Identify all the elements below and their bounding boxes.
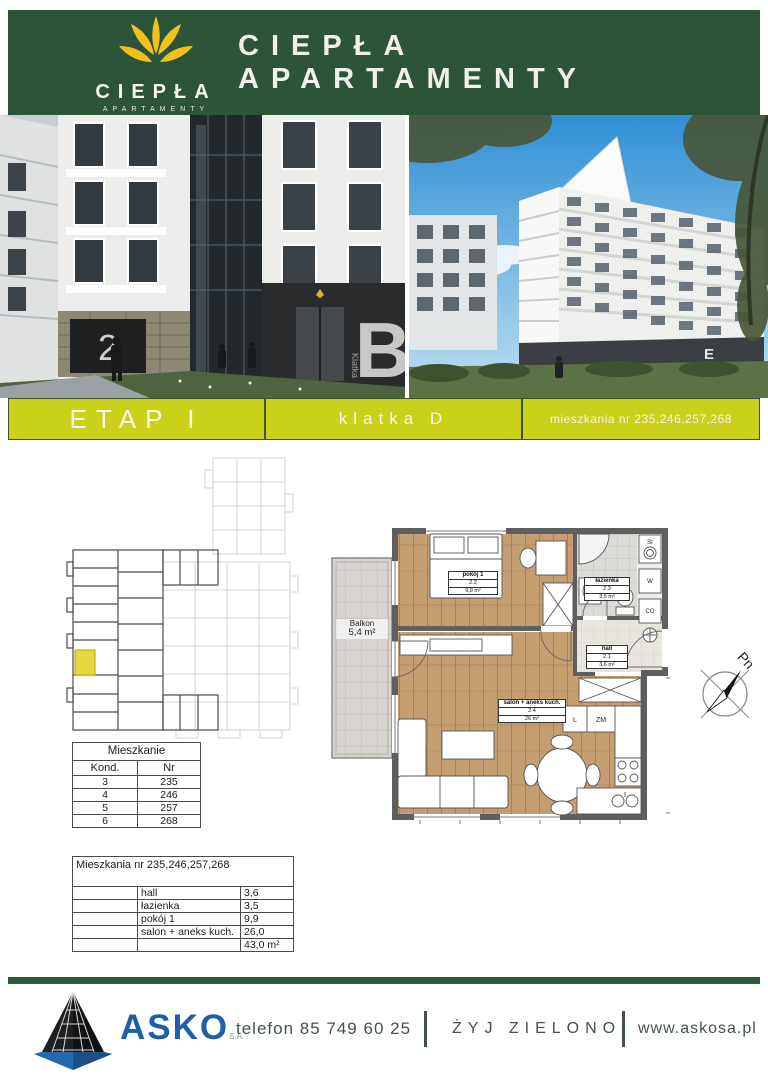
page-title: CIEPŁA APARTAMENTY: [238, 10, 750, 115]
col-nr: Nr: [138, 761, 201, 776]
asko-logo-icon: [28, 990, 118, 1074]
entrance-letter-e: E: [704, 346, 714, 363]
footer-website: www.askosa.pl: [638, 1020, 757, 1038]
stair-label: Klatka: [350, 353, 360, 378]
shaft-label-st: St: [647, 540, 653, 546]
brand-logo: CIEPŁA APARTAMENTY: [66, 16, 246, 115]
table-row: salon + aneks kuch. 26,0: [73, 926, 294, 939]
banner-etap: ETAP I: [9, 399, 264, 439]
banner-klatka: klatka D: [264, 399, 521, 439]
logo-sub-text: APARTAMENTY: [66, 106, 246, 113]
compass-rose: Pn: [693, 640, 765, 728]
footer-separator: [622, 1011, 625, 1047]
table-row: 6 268: [73, 815, 201, 828]
logo-brand-text: CIEPŁA: [66, 81, 246, 104]
header-bar: CIEPŁA APARTAMENTY CIEPŁA APARTAMENTY: [8, 10, 760, 115]
room-label-salon: salon + aneks kuch. 2.4 26 m²: [498, 699, 566, 723]
room-label-lazienka: łazienka 2.3 3,5 m²: [584, 577, 630, 601]
room-label-hall: hall 2.1 3,6 m²: [586, 645, 628, 669]
footer-phone: telefon 85 749 60 25: [236, 1019, 411, 1039]
highlighted-unit: [75, 650, 95, 675]
footer-slogan: ŻYJ ZIELONO: [452, 1020, 621, 1038]
table-row: 3 235: [73, 776, 201, 789]
footer-separator: [424, 1011, 427, 1047]
areas-table: Mieszkania nr 235,246,257,268 hall 3,6 ł…: [72, 856, 294, 952]
entrance-letter-b: B: [355, 306, 405, 394]
kitchen-label-fridge: L: [573, 717, 577, 724]
shaft-label-co: CO: [646, 609, 655, 615]
compass-north-label: Pn: [734, 649, 757, 672]
flyer-page: CIEPŁA APARTAMENTY CIEPŁA APARTAMENTY: [0, 0, 768, 1087]
table-row: pokój 1 9,9: [73, 913, 294, 926]
kitchen-label-dishwasher: ZM: [596, 717, 606, 724]
apartment-floorplan: St W CO: [330, 523, 670, 825]
areas-table-title: Mieszkania nr 235,246,257,268: [73, 857, 294, 887]
total-area: 43,0 m²: [241, 939, 294, 952]
table-row: 4 246: [73, 789, 201, 802]
balcony-label: Balkon 5,4 m²: [336, 619, 388, 639]
table-total-row: 43,0 m²: [73, 939, 294, 952]
footer-divider: [8, 977, 760, 984]
banner-mieszkania: mieszkania nr 235,246,257,268: [521, 399, 759, 439]
table-row: hall 3,6: [73, 887, 294, 900]
apartments-table: Mieszkanie Kond. Nr 3 235 4 246 5 257 6 …: [72, 742, 201, 828]
lotus-flower-icon: [119, 16, 193, 74]
building-render-left: 2 B Klatka: [0, 115, 409, 398]
asko-wordmark: ASKOS.A.: [120, 1008, 244, 1048]
shaft-label-w: W: [647, 579, 653, 585]
apartments-table-title: Mieszkanie: [73, 743, 201, 761]
table-row: łazienka 3,5: [73, 900, 294, 913]
table-row: 5 257: [73, 802, 201, 815]
site-overview-plan: [58, 450, 308, 740]
room-label-pokoj1: pokój 1 2.2 9,9 m²: [448, 571, 498, 595]
building-render-right: E: [409, 115, 768, 398]
banner-bar: ETAP I klatka D mieszkania nr 235,246,25…: [8, 398, 760, 440]
col-kond: Kond.: [73, 761, 138, 776]
